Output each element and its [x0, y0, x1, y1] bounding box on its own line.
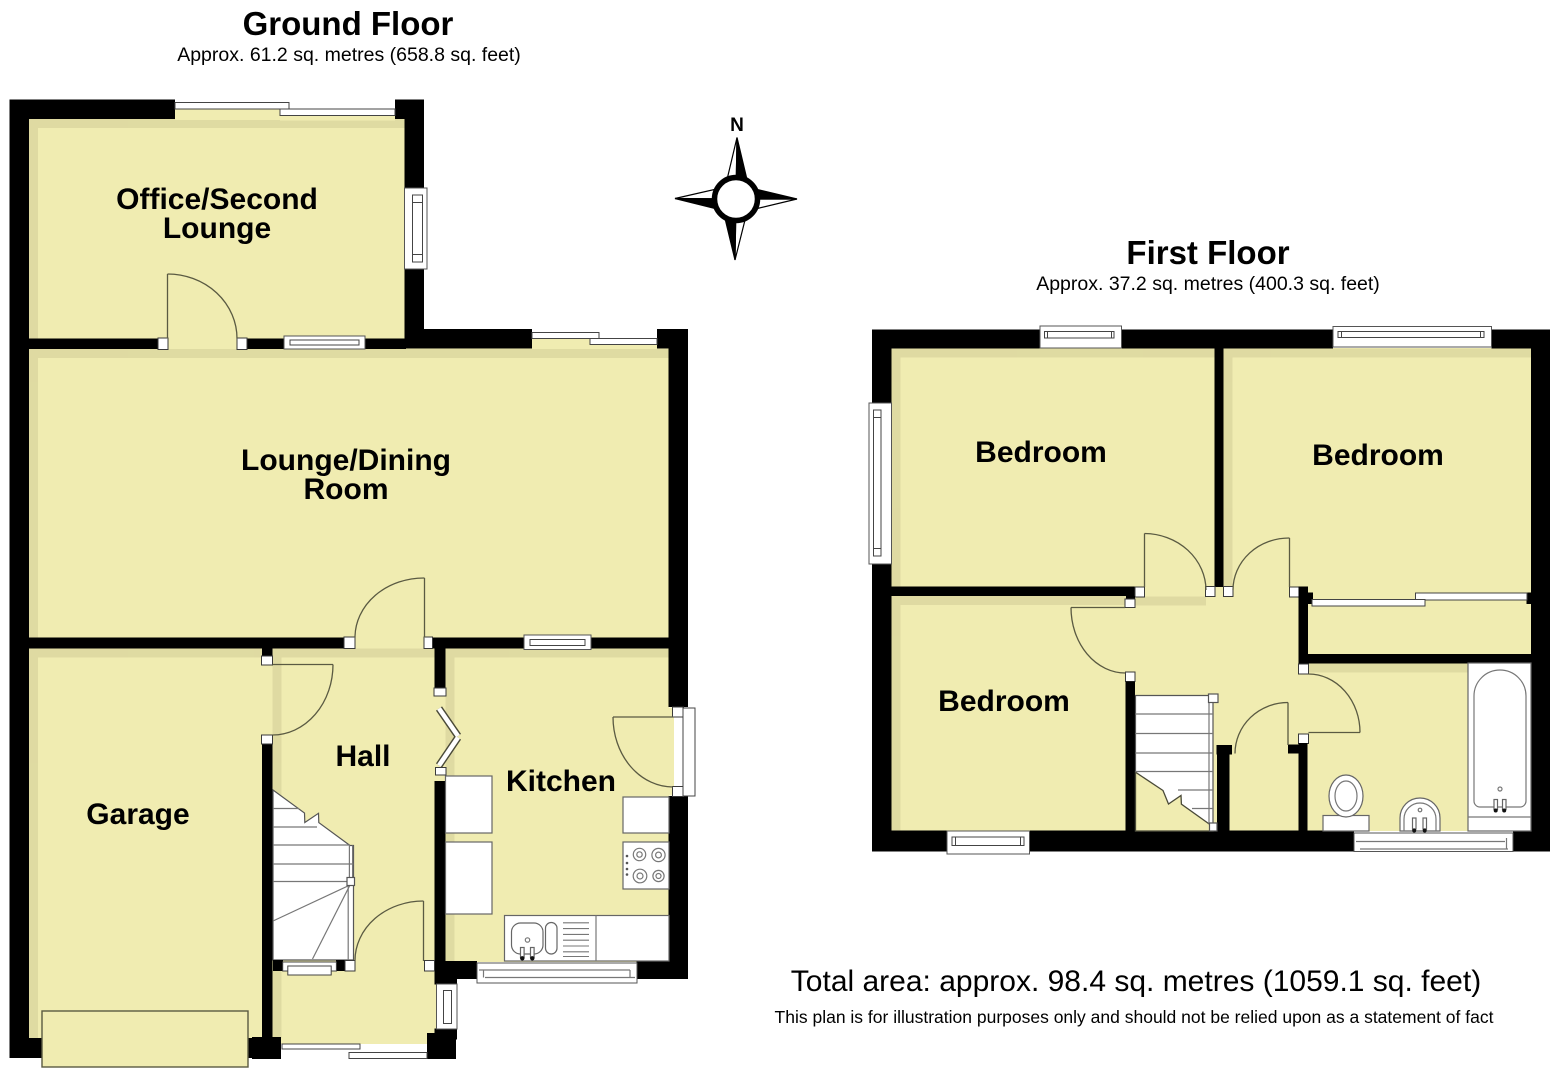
svg-text:Kitchen: Kitchen: [506, 765, 616, 798]
svg-text:Total area: approx. 98.4 sq. m: Total area: approx. 98.4 sq. metres (105…: [791, 965, 1481, 998]
svg-text:Ground Floor: Ground Floor: [243, 5, 454, 42]
svg-text:Approx. 61.2 sq. metres (658.8: Approx. 61.2 sq. metres (658.8 sq. feet): [177, 44, 521, 66]
svg-text:First Floor: First Floor: [1126, 234, 1289, 271]
svg-text:Bedroom: Bedroom: [1312, 439, 1444, 472]
svg-text:Approx. 37.2 sq. metres (400.3: Approx. 37.2 sq. metres (400.3 sq. feet): [1036, 273, 1380, 295]
svg-text:Garage: Garage: [86, 798, 189, 831]
svg-text:Bedroom: Bedroom: [975, 436, 1107, 469]
svg-text:This plan is for illustration: This plan is for illustration purposes o…: [775, 1007, 1494, 1027]
svg-text:Bedroom: Bedroom: [938, 685, 1070, 718]
svg-text:N: N: [730, 115, 744, 136]
svg-text:Hall: Hall: [335, 740, 390, 773]
svg-text:Room: Room: [304, 473, 389, 506]
svg-text:Lounge: Lounge: [163, 212, 271, 245]
